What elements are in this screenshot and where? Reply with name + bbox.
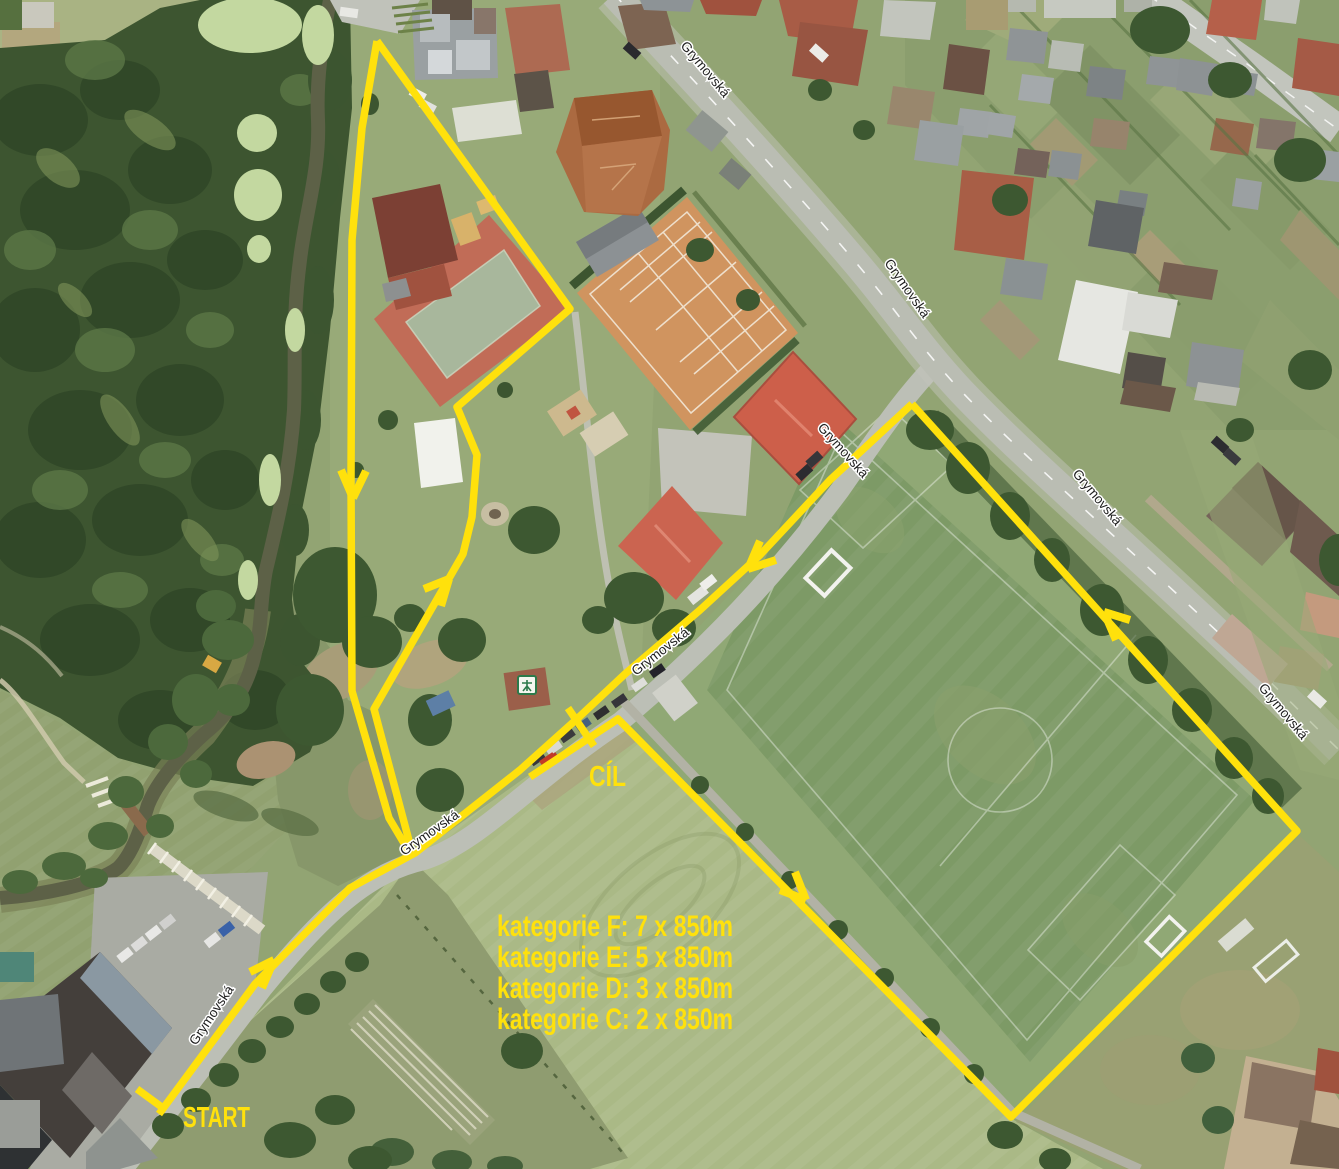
svg-text:START: START	[183, 1102, 250, 1134]
svg-text:kategorie E: 5 x 850m: kategorie E: 5 x 850m	[497, 941, 733, 974]
svg-text:kategorie C: 2 x 850m: kategorie C: 2 x 850m	[497, 1003, 733, 1036]
svg-text:CÍL: CÍL	[589, 759, 626, 793]
svg-text:kategorie D: 3 x 850m: kategorie D: 3 x 850m	[497, 972, 733, 1005]
svg-text:kategorie F: 7 x 850m: kategorie F: 7 x 850m	[497, 910, 733, 943]
